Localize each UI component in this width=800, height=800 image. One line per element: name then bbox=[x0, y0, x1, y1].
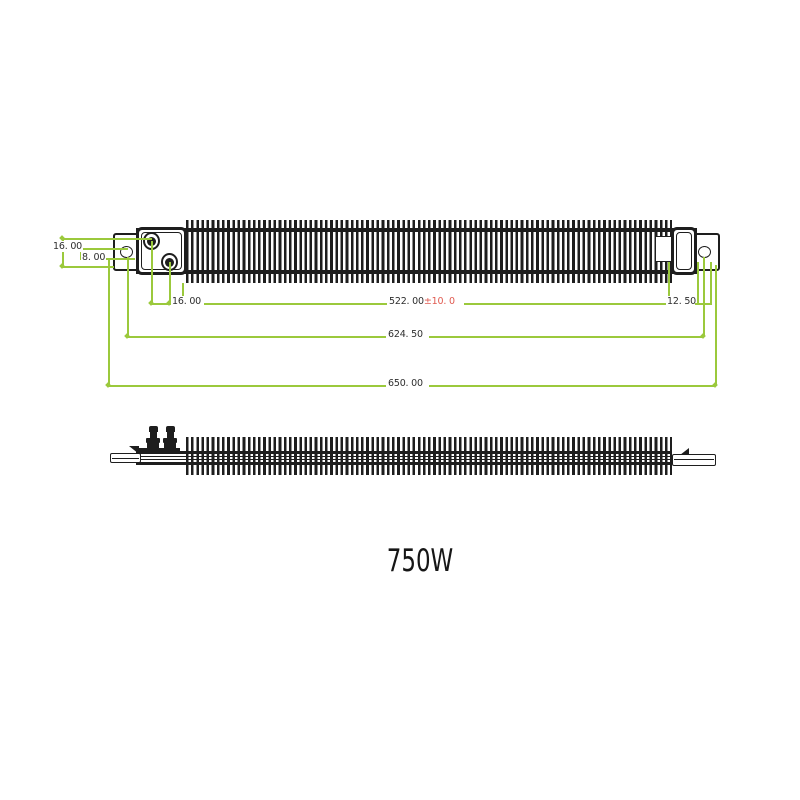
dim-extension-line bbox=[710, 262, 712, 304]
dim-line bbox=[127, 336, 386, 338]
dim-line bbox=[464, 303, 668, 305]
dimension-end-marker bbox=[148, 300, 154, 306]
dim-extension-line bbox=[715, 265, 717, 386]
dim-line bbox=[80, 248, 128, 250]
dim-label-hole-to-hole: 624. 50 bbox=[387, 329, 424, 340]
dimension-end-marker bbox=[59, 263, 65, 269]
dim-line bbox=[62, 238, 152, 240]
dim-label-overall-length: 650. 00 bbox=[387, 378, 424, 389]
finned-length-value: 522. 00 bbox=[389, 296, 424, 307]
mounting-tab-right-side bbox=[672, 454, 716, 466]
weld-mark-right bbox=[680, 448, 689, 455]
mounting-tab-left-side bbox=[110, 453, 141, 463]
tab-inner-line bbox=[112, 458, 139, 459]
dim-label-end-hole-offset: 12. 50 bbox=[666, 296, 697, 307]
drawing-canvas: { "title": { "text": "750W" }, "colors":… bbox=[0, 0, 800, 800]
dimension-end-marker bbox=[59, 235, 65, 241]
finned-length-tolerance: ±10. 0 bbox=[424, 296, 455, 307]
terminal-post-2-stem bbox=[167, 431, 174, 438]
tube-bar-top-edge bbox=[136, 451, 672, 454]
dimension-layer: 16. 00 8. 00 16. 00 522. 00±10. 0 12. 50… bbox=[0, 0, 800, 420]
terminal-post-1-stem bbox=[150, 431, 157, 438]
dim-line bbox=[429, 336, 703, 338]
dim-extension-line bbox=[127, 257, 129, 337]
dimension-end-marker bbox=[124, 333, 130, 339]
dimension-end-marker bbox=[712, 382, 718, 388]
dim-extension-line bbox=[108, 260, 110, 386]
terminal-post-1-collar bbox=[147, 443, 159, 449]
dim-line bbox=[204, 303, 387, 305]
terminal-post-2-collar bbox=[164, 443, 176, 449]
dimension-end-marker bbox=[700, 333, 706, 339]
dim-extension-line bbox=[151, 241, 153, 303]
tab-inner-line bbox=[674, 459, 714, 460]
side-view bbox=[0, 410, 800, 520]
tube-bar-inner-line bbox=[140, 456, 670, 457]
weld-mark-left bbox=[129, 446, 139, 454]
dim-line bbox=[108, 385, 386, 387]
dim-line bbox=[429, 385, 715, 387]
dim-extension-line bbox=[697, 262, 699, 304]
tube-bar-bottom-edge bbox=[136, 462, 672, 465]
tube-bar-inner-line bbox=[140, 459, 670, 460]
dim-label-hole-offset: 8. 00 bbox=[81, 252, 106, 263]
power-rating-title: 750W bbox=[372, 543, 468, 579]
dimension-end-marker bbox=[105, 382, 111, 388]
dim-extension-line bbox=[703, 257, 705, 337]
dim-label-terminal-row-spacing: 16. 00 bbox=[52, 241, 83, 252]
dim-line bbox=[62, 266, 114, 268]
dim-label-finned-length: 522. 00±10. 0 bbox=[388, 296, 456, 307]
dim-label-terminal-column-spacing: 16. 00 bbox=[171, 296, 202, 307]
